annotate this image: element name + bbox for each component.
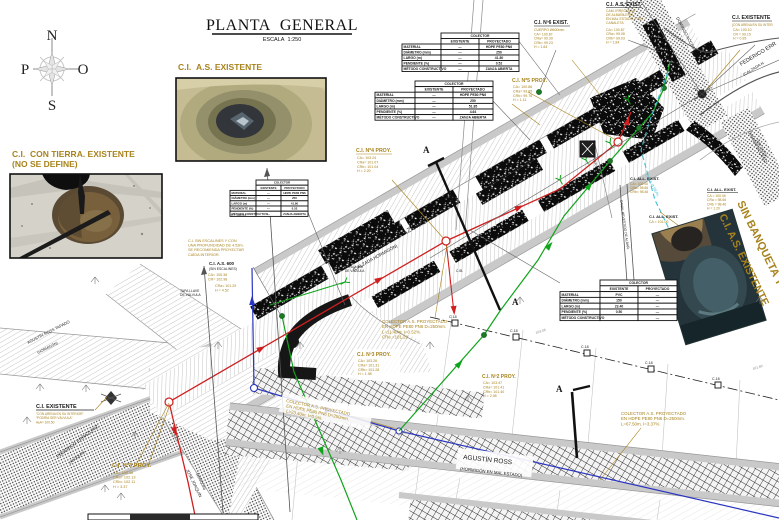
svg-text:4.64: 4.64 (470, 110, 477, 114)
svg-text:CRb= 102.11: CRb= 102.11 (113, 480, 135, 484)
svg-text:H = 1.98: H = 1.98 (358, 372, 372, 376)
svg-text:H = 2.08: H = 2.08 (483, 394, 497, 398)
svg-text:EXISTENTE: EXISTENTE (451, 39, 471, 43)
svg-text:ESCALA 1:250: ESCALA 1:250 (263, 37, 302, 43)
svg-text:—: — (267, 212, 270, 216)
svg-text:—: — (267, 201, 270, 205)
svg-text:CA= 103.47: CA= 103.47 (483, 381, 502, 385)
svg-text:SE RECOMIENDA PROYECTAR: SE RECOMIENDA PROYECTAR (188, 248, 244, 252)
svg-text:H = 4.52: H = 4.52 (215, 288, 229, 292)
svg-text:CRa= 102.13: CRa= 102.13 (113, 476, 135, 480)
svg-text:LARGO (m): LARGO (m) (562, 304, 580, 308)
svg-text:HDPE PE80 PN6: HDPE PE80 PN6 (486, 45, 512, 49)
svg-text:250: 250 (292, 196, 297, 200)
svg-text:CRa= 101.41: CRa= 101.41 (483, 385, 504, 389)
svg-text:P: P (21, 62, 29, 78)
svg-text:MÉTODO CONSTRUCTIVO: MÉTODO CONSTRUCTIVO (562, 315, 605, 320)
svg-text:C.I. ALL. EXIST.: C.I. ALL. EXIST. (630, 176, 659, 181)
svg-text:EXISTENTE: EXISTENTE (610, 287, 630, 291)
svg-text:CRa= 101.29: CRa= 101.29 (215, 284, 236, 288)
svg-text:—: — (267, 207, 270, 211)
svg-text:CR= 102.98: CR= 102.98 (208, 277, 227, 281)
svg-text:41.80: 41.80 (291, 201, 299, 205)
svg-text:LARGO (m): LARGO (m) (232, 201, 248, 205)
svg-text:HDPE PE80 PN6: HDPE PE80 PN6 (283, 191, 306, 195)
svg-text:CRb= 101.40: CRb= 101.40 (483, 390, 504, 394)
svg-text:EXISTENTE: EXISTENTE (425, 88, 445, 92)
svg-text:MATERIAL: MATERIAL (232, 191, 247, 195)
svg-text:C.I. Nº3 PROY.: C.I. Nº3 PROY. (112, 463, 152, 469)
svg-text:H = 2.20: H = 2.20 (357, 169, 371, 173)
svg-text:CA= 103.26: CA= 103.26 (358, 359, 377, 363)
svg-text:MÉTODO CONSTRUCTIVO: MÉTODO CONSTRUCTIVO (404, 66, 447, 71)
svg-text:S: S (48, 98, 56, 114)
svg-text:C.18: C.18 (712, 377, 720, 381)
svg-text:CA= 105.38: CA= 105.38 (208, 273, 227, 277)
svg-text:COLECTOR: COLECTOR (274, 181, 291, 185)
svg-text:PLANTA GENERAL: PLANTA GENERAL (206, 17, 358, 34)
svg-text:CANALETA: CANALETA (606, 21, 624, 25)
svg-text:O: O (78, 62, 89, 78)
svg-text:DIÁMETRO (mm): DIÁMETRO (mm) (377, 98, 404, 103)
svg-text:CA= 100.86: CA= 100.86 (513, 85, 532, 89)
svg-text:MÉTODO CONSTRUCTIVO: MÉTODO CONSTRUCTIVO (377, 115, 420, 120)
svg-text:PENDIENTE (%): PENDIENTE (%) (404, 61, 430, 65)
svg-text:COLECTOR: COLECTOR (629, 281, 649, 285)
svg-text:A: A (423, 145, 430, 155)
svg-text:0.52: 0.52 (496, 61, 503, 65)
svg-text:DE VÁLVULA: DE VÁLVULA (345, 269, 365, 273)
svg-text:DE VÁLVULA: DE VÁLVULA (180, 293, 201, 297)
svg-text:C.18: C.18 (449, 315, 457, 319)
svg-text:C.I. ALL. EXIST.: C.I. ALL. EXIST. (707, 187, 736, 192)
svg-text:150: 150 (616, 299, 622, 303)
svg-text:H = 1.11: H = 1.11 (513, 98, 526, 102)
svg-text:C.I. A.S. 600: C.I. A.S. 600 (209, 261, 235, 266)
svg-text:(NO SE DEFINE): (NO SE DEFINE) (12, 159, 78, 169)
svg-text:C.I. Nº4 PROY.: C.I. Nº4 PROY. (356, 148, 392, 154)
svg-text:PROYECTADO: PROYECTADO (461, 88, 485, 92)
svg-text:250: 250 (496, 50, 502, 54)
svg-text:C.I. Nº3 PROY.: C.I. Nº3 PROY. (357, 352, 391, 358)
svg-text:C.I. Nº5 PROY.: C.I. Nº5 PROY. (512, 78, 548, 84)
svg-text:A: A (512, 297, 519, 307)
svg-text:250: 250 (470, 99, 476, 103)
svg-text:ZANJA ABIERTA: ZANJA ABIERTA (283, 212, 307, 216)
svg-text:C.I. ALL. EXIST.: C.I. ALL. EXIST. (649, 214, 678, 219)
svg-text:AьA= 100.50: AьA= 100.50 (36, 420, 55, 424)
svg-text:CRa= 101.31: CRa= 101.31 (358, 363, 379, 367)
svg-text:0.50: 0.50 (616, 310, 623, 314)
svg-text:PVC: PVC (616, 293, 624, 297)
svg-text:PROYECTADO: PROYECTADO (646, 287, 670, 291)
svg-text:—: — (267, 191, 270, 195)
svg-text:23.40: 23.40 (615, 304, 624, 308)
svg-text:LARGO (m): LARGO (m) (404, 56, 422, 60)
svg-text:C.IB.: C.IB. (456, 269, 463, 273)
svg-text:C.I. A.S. EXISTENTE: C.I. A.S. EXISTENTE (178, 62, 262, 72)
svg-text:H = 1.84: H = 1.84 (606, 41, 619, 45)
svg-text:PROYECTADO: PROYECTADO (284, 186, 305, 190)
svg-text:C.18: C.18 (510, 329, 518, 333)
svg-text:C.I. 140-4-6: C.I. 140-4-6 (231, 213, 247, 217)
svg-text:PENDIENTE (%): PENDIENTE (%) (377, 110, 403, 114)
svg-text:C.18: C.18 (645, 361, 653, 365)
svg-text:MATERIAL: MATERIAL (377, 93, 394, 97)
svg-text:(CON ARENA EN SU INTER.: (CON ARENA EN SU INTER. (732, 23, 774, 27)
svg-text:C.I. Nº2 PROY.: C.I. Nº2 PROY. (482, 374, 516, 380)
svg-text:C.I. Nº6 EXIST.: C.I. Nº6 EXIST. (534, 20, 569, 26)
svg-text:N: N (47, 28, 58, 44)
svg-text:C.I. EXISTENTE: C.I. EXISTENTE (732, 15, 771, 21)
svg-text:—: — (267, 196, 270, 200)
svg-text:0.52: 0.52 (292, 207, 298, 211)
svg-text:CRa= 101.07: CRa= 101.07 (357, 160, 378, 164)
svg-text:CRa= 99.85: CRa= 99.85 (513, 89, 532, 93)
svg-text:C.18: C.18 (581, 345, 589, 349)
svg-text:CAÍDA INTERIOR.: CAÍDA INTERIOR. (188, 253, 220, 257)
svg-text:CRb= 101.28: CRb= 101.28 (358, 368, 379, 372)
svg-text:ZANJA ABIERTA: ZANJA ABIERTA (460, 116, 487, 120)
svg-text:HDPE PE80 PN6: HDPE PE80 PN6 (460, 93, 486, 97)
svg-text:UNA PROFUNDIDAD DE 4.53m.: UNA PROFUNDIDAD DE 4.53m. (188, 244, 244, 248)
svg-text:C.I. A.S. EXIST.: C.I. A.S. EXIST. (606, 2, 642, 8)
svg-text:DIÁMETRO (mm): DIÁMETRO (mm) (232, 195, 255, 200)
svg-text:CRb= 99.76: CRb= 99.76 (513, 94, 532, 98)
svg-text:EXISTENTE: EXISTENTE (260, 186, 276, 190)
svg-text:CA= 103.46: CA= 103.46 (113, 471, 133, 475)
svg-text:41.80: 41.80 (495, 56, 504, 60)
svg-text:CA= 103.24: CA= 103.24 (357, 156, 376, 160)
svg-text:C.I. EXISTENTE: C.I. EXISTENTE (36, 404, 77, 410)
svg-text:MATERIAL: MATERIAL (562, 293, 579, 297)
svg-text:C.I. CON TIERRA. EXISTENTE: C.I. CON TIERRA. EXISTENTE (12, 149, 135, 159)
svg-text:H = 0.95: H = 0.95 (733, 37, 746, 41)
svg-text:CA = 101.00: CA = 101.00 (649, 220, 668, 224)
svg-text:H = 1.20: H = 1.20 (707, 207, 720, 211)
svg-text:ZANJA ABIERTA: ZANJA ABIERTA (486, 67, 513, 71)
svg-text:MATERIAL: MATERIAL (404, 45, 421, 49)
svg-text:H = 1.64: H = 1.64 (534, 45, 547, 49)
svg-text:C.I. SIN ESCALINES Y CON: C.I. SIN ESCALINES Y CON (188, 239, 237, 243)
svg-text:LARGO (m): LARGO (m) (377, 104, 395, 108)
svg-text:L=67.50m. I=3.37%.: L=67.50m. I=3.37%. (621, 421, 661, 426)
svg-text:CRe.=101.29: CRe.=101.29 (382, 335, 409, 340)
svg-text:PENDIENTE (%): PENDIENTE (%) (232, 207, 254, 211)
svg-text:(SIN ESCALINES): (SIN ESCALINES) (209, 267, 237, 271)
svg-text:H = 3.37: H = 3.37 (113, 485, 127, 489)
svg-text:CRb= 98.46: CRb= 98.46 (630, 190, 648, 194)
svg-text:CRb= 101.04: CRb= 101.04 (357, 165, 378, 169)
svg-text:PROYECTADO: PROYECTADO (487, 39, 511, 43)
svg-text:A: A (556, 384, 563, 394)
svg-text:PENDIENTE (%): PENDIENTE (%) (562, 310, 588, 314)
svg-text:COLECTOR: COLECTOR (471, 34, 491, 38)
svg-text:COLECTOR: COLECTOR (445, 82, 465, 86)
svg-text:DIÁMETRO (mm): DIÁMETRO (mm) (562, 298, 589, 303)
svg-text:DIÁMETRO (mm): DIÁMETRO (mm) (404, 49, 431, 54)
svg-text:51.85: 51.85 (469, 104, 478, 108)
